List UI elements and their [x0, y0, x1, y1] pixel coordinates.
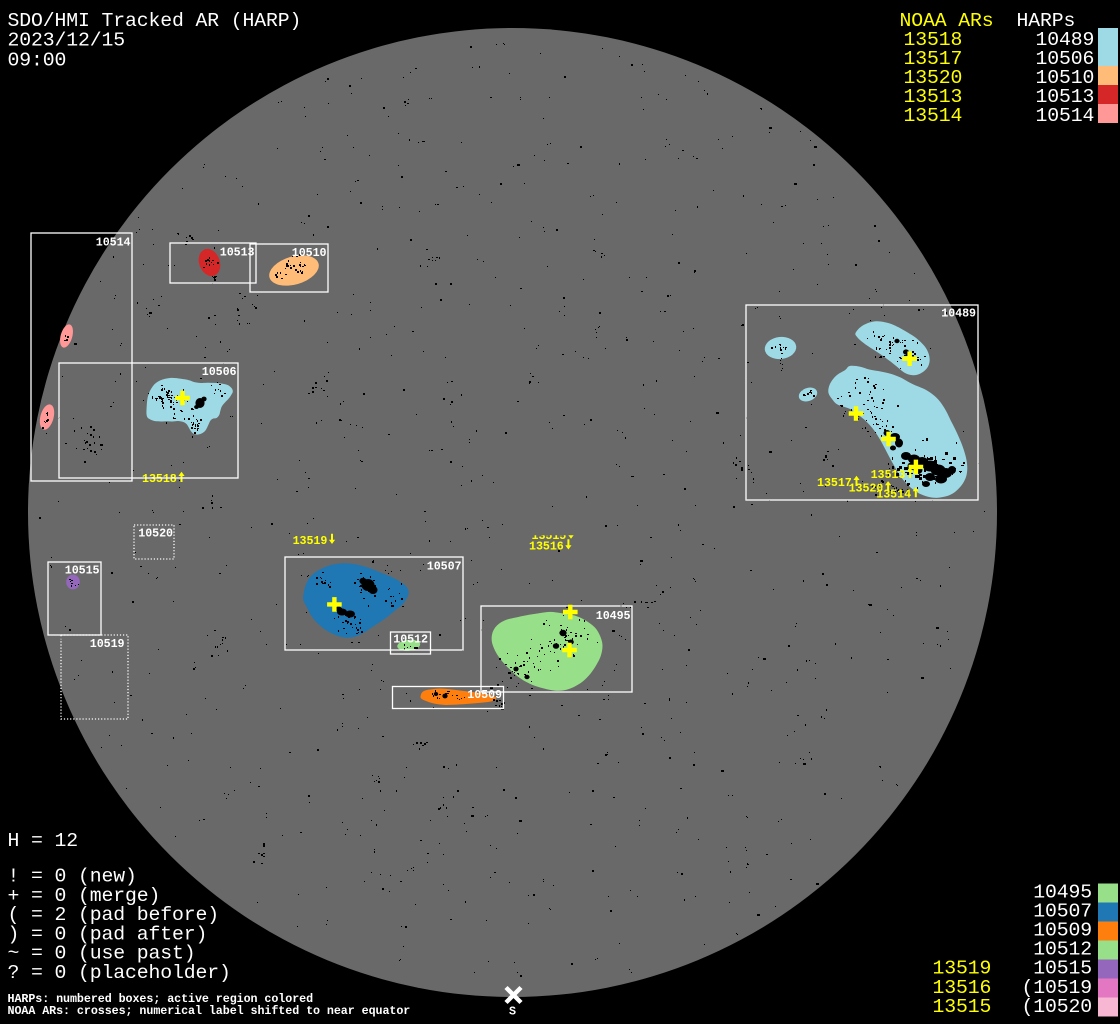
svg-text:13517: 13517 — [817, 476, 852, 490]
svg-text:10506: 10506 — [202, 365, 237, 379]
svg-text:? = 0 (placeholder): ? = 0 (placeholder) — [8, 962, 231, 984]
svg-text:10507: 10507 — [427, 560, 462, 574]
svg-text:NOAA ARs: crosses; numerical l: NOAA ARs: crosses; numerical label shift… — [8, 1004, 411, 1018]
svg-text:13514: 13514 — [904, 105, 963, 127]
svg-text:10519: 10519 — [90, 637, 125, 651]
svg-text:2023/12/15: 2023/12/15 — [8, 30, 126, 52]
svg-text:10513: 10513 — [220, 246, 255, 260]
svg-text:13514: 13514 — [876, 487, 911, 501]
svg-text:10512: 10512 — [393, 633, 428, 647]
svg-text:(10520: (10520 — [1021, 996, 1092, 1018]
svg-text:H = 12: H = 12 — [8, 830, 79, 852]
svg-text:10515: 10515 — [65, 564, 100, 578]
svg-text:10510: 10510 — [292, 246, 327, 260]
svg-text:10514: 10514 — [1036, 105, 1095, 127]
svg-text:SDO/HMI Tracked AR (HARP): SDO/HMI Tracked AR (HARP) — [8, 10, 302, 32]
svg-text:13518: 13518 — [142, 472, 177, 486]
svg-text:13515: 13515 — [933, 996, 992, 1018]
svg-text:10495: 10495 — [596, 609, 631, 623]
svg-text:10514: 10514 — [96, 236, 131, 250]
svg-text:S: S — [509, 1005, 516, 1019]
svg-text:13519: 13519 — [293, 534, 328, 548]
svg-text:10509: 10509 — [467, 688, 502, 702]
svg-text:13513: 13513 — [871, 468, 906, 482]
svg-text:09:00: 09:00 — [8, 49, 67, 71]
svg-text:10489: 10489 — [941, 307, 976, 321]
svg-text:13516: 13516 — [529, 540, 564, 554]
svg-text:10520: 10520 — [138, 527, 173, 541]
